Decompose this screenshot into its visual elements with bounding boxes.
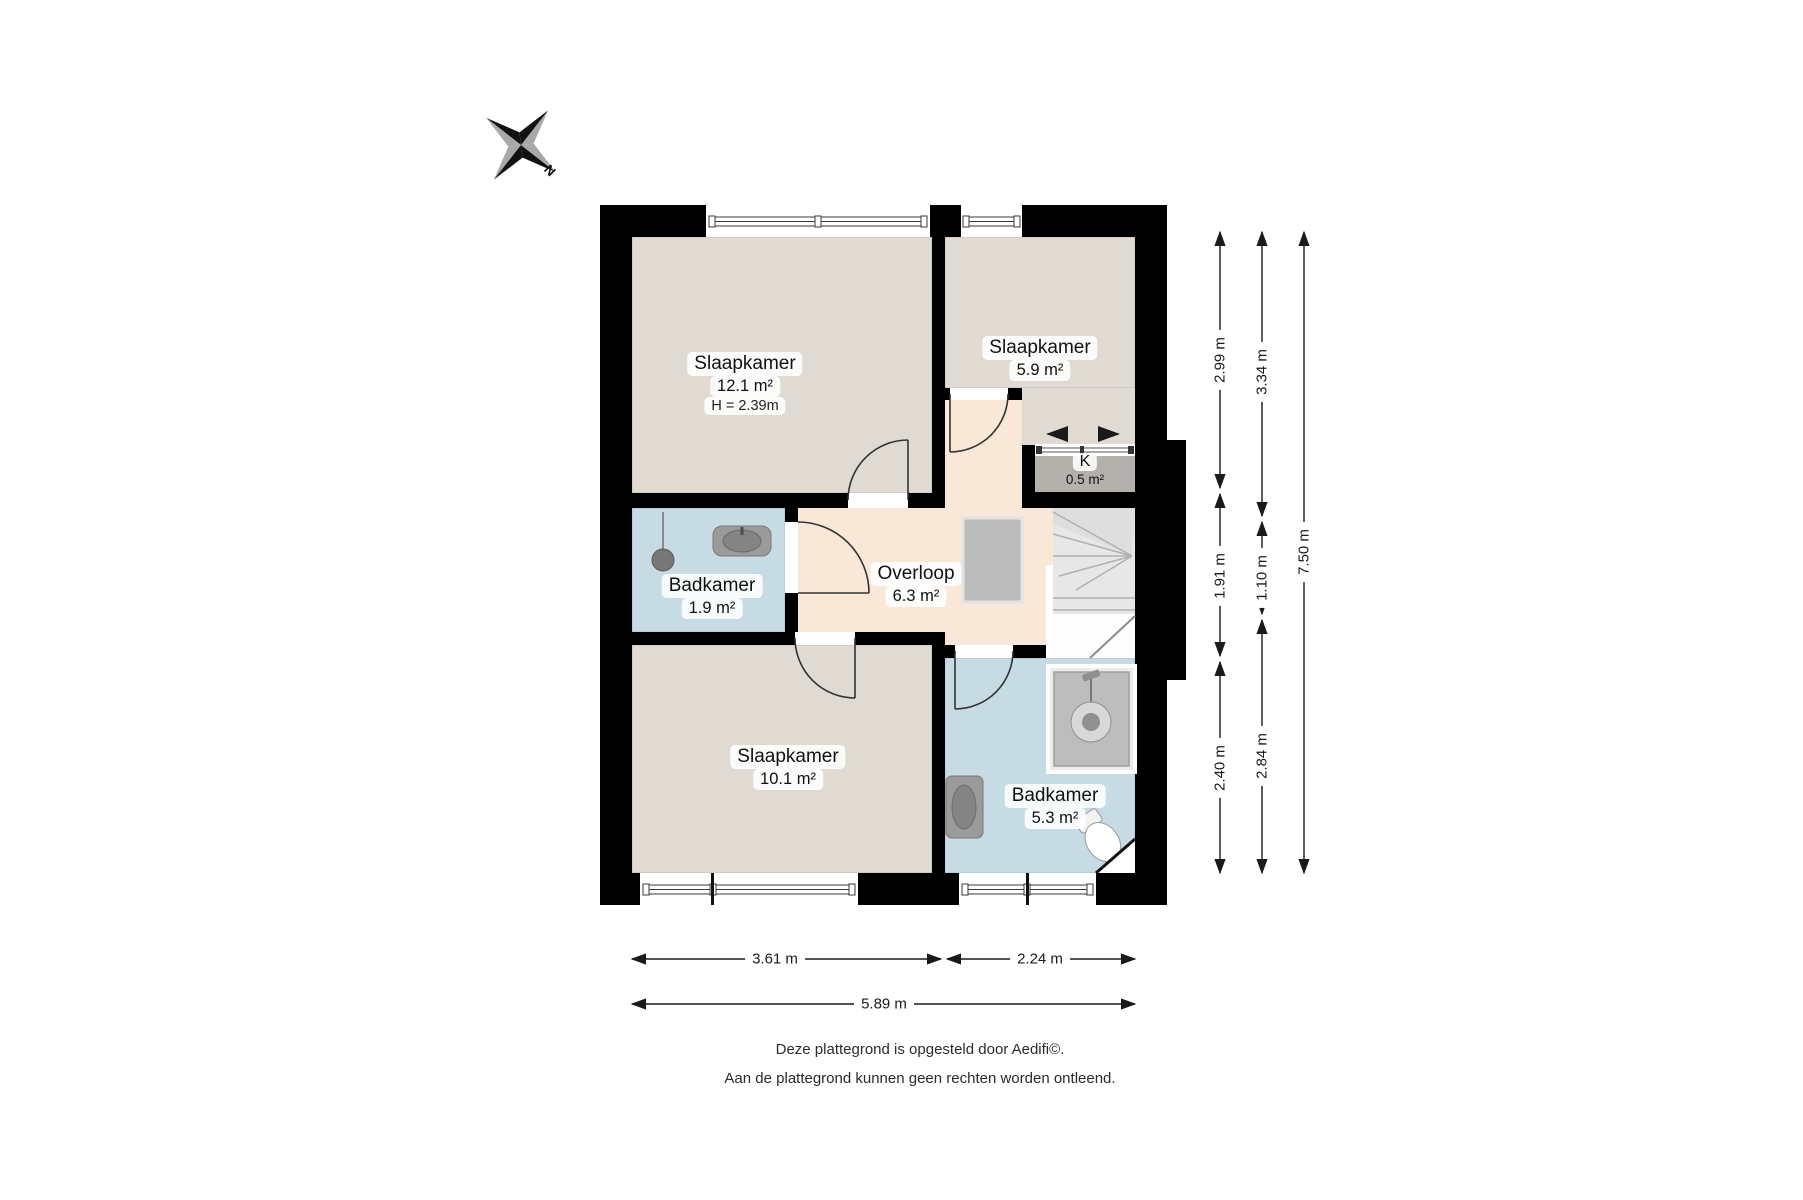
room-label-overloop: Overloop 6.3 m² — [870, 562, 961, 607]
room-area: 10.1 m² — [753, 769, 823, 790]
floor-slaapkamer-59b — [1022, 388, 1135, 445]
room-name: K — [1073, 453, 1098, 471]
room-label-badkamer-53: Badkamer 5.3 m² — [1005, 784, 1106, 829]
compass-rose-icon — [459, 83, 583, 207]
footer-disclaimer: Aan de plattegrond kunnen geen rechten w… — [724, 1070, 1115, 1087]
room-label-slaapkamer-12: Slaapkamer 12.1 m² H = 2.39m — [687, 352, 802, 415]
room-label-badkamer-19: Badkamer 1.9 m² — [662, 574, 763, 619]
dim-label-224: 2.24 m — [1010, 951, 1070, 968]
dim-label-334: 3.34 m — [1254, 342, 1271, 402]
dim-label-299: 2.99 m — [1212, 330, 1229, 390]
room-name: Overloop — [870, 562, 961, 586]
dim-label-361: 3.61 m — [745, 951, 805, 968]
room-name: Badkamer — [662, 574, 763, 598]
floorplan-page: N Slaapkamer 12.1 m² H = 2.39m Slaapkame… — [0, 0, 1803, 1200]
room-area: 5.3 m² — [1025, 808, 1086, 829]
room-name: Slaapkamer — [687, 352, 802, 376]
window-bottom-right — [959, 873, 1096, 905]
floor-overloop-b — [945, 632, 1053, 645]
dim-label-110: 1.10 m — [1254, 548, 1271, 608]
room-area: 12.1 m² — [710, 376, 780, 397]
stair-jamb — [1046, 565, 1053, 658]
shower-drain-icon — [652, 549, 674, 571]
room-area: 5.9 m² — [1010, 360, 1071, 381]
room-label-slaapkamer-101: Slaapkamer 10.1 m² — [730, 745, 845, 790]
floor-vestibule — [945, 400, 1022, 508]
dim-label-284: 2.84 m — [1254, 726, 1271, 786]
footer-attribution: Deze plattegrond is opgesteld door Aedif… — [776, 1041, 1065, 1058]
overloop-void — [963, 518, 1022, 602]
staircase — [1046, 508, 1135, 658]
window-top-large — [706, 205, 930, 237]
dim-label-589: 5.89 m — [854, 996, 914, 1013]
room-height: H = 2.39m — [704, 397, 785, 416]
dim-label-750: 7.50 m — [1296, 522, 1313, 582]
room-name: Badkamer — [1005, 784, 1106, 808]
shower-icon — [1048, 666, 1135, 772]
room-label-slaapkamer-59: Slaapkamer 5.9 m² — [982, 336, 1097, 381]
room-name: Slaapkamer — [730, 745, 845, 769]
window-top-small — [961, 205, 1022, 237]
room-area: 6.3 m² — [886, 586, 947, 607]
room-label-kast: K 0.5 m² — [1062, 453, 1108, 489]
room-area: 1.9 m² — [682, 598, 743, 619]
room-name: Slaapkamer — [982, 336, 1097, 360]
dim-label-240: 2.40 m — [1212, 738, 1229, 798]
dim-label-191: 1.91 m — [1212, 546, 1229, 606]
room-area: 0.5 m² — [1062, 472, 1108, 489]
window-bottom-left — [640, 873, 858, 905]
sink-icon — [946, 776, 983, 838]
